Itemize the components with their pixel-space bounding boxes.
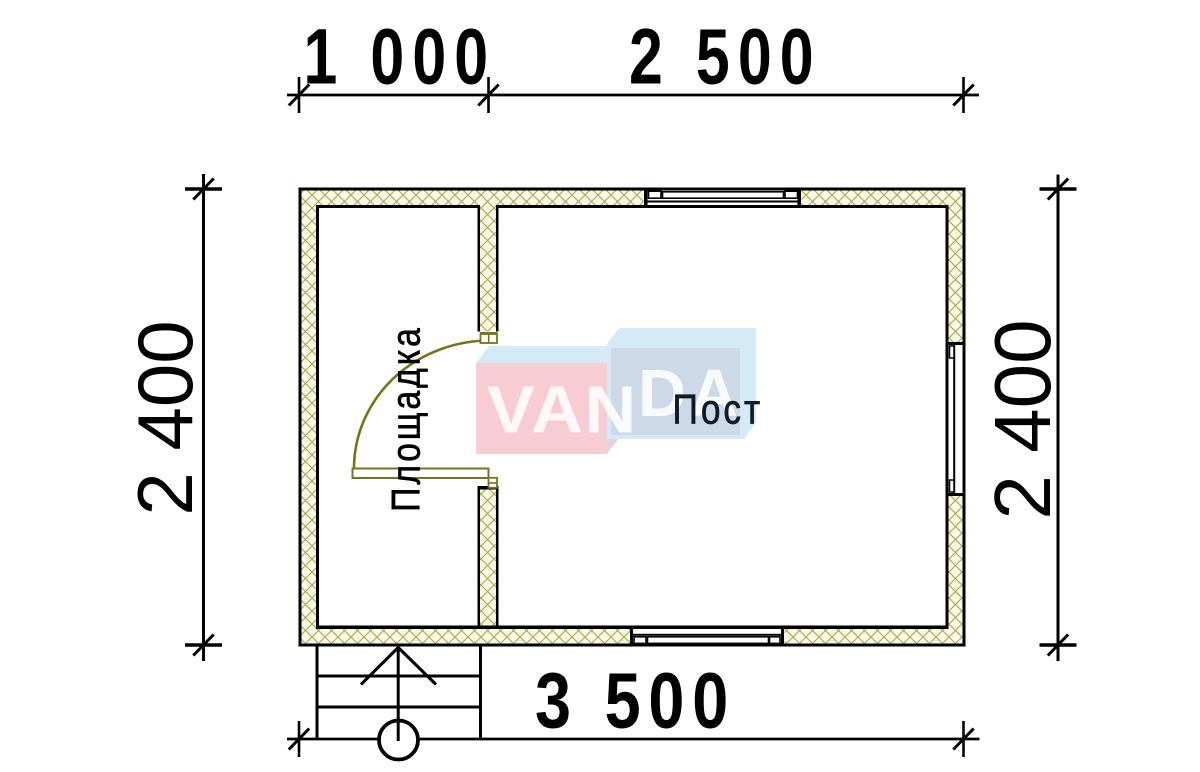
svg-text:Площадка: Площадка	[384, 325, 428, 511]
svg-text:2 400: 2 400	[978, 319, 1067, 519]
svg-text:3 500: 3 500	[535, 658, 736, 745]
svg-text:2 400: 2 400	[121, 320, 209, 515]
svg-text:VAN: VAN	[487, 372, 638, 447]
svg-text:1 000: 1 000	[304, 12, 497, 101]
svg-text:Пост: Пост	[673, 387, 764, 433]
svg-text:2 500: 2 500	[629, 12, 822, 101]
